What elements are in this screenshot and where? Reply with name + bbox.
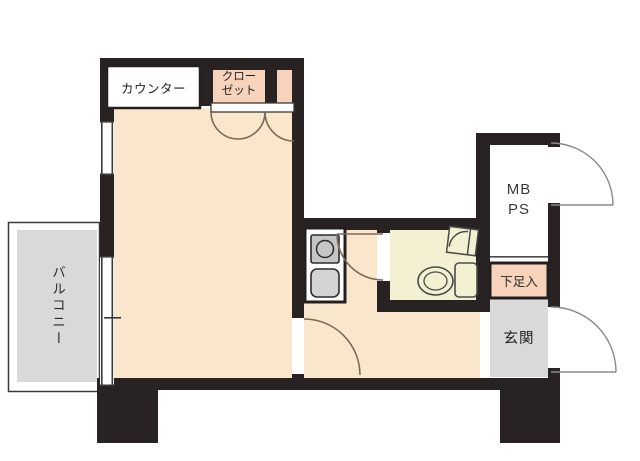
closet-label-line1: クロー: [222, 71, 257, 85]
closet-door-track: [211, 103, 294, 112]
balcony-label: バルコニー: [17, 230, 97, 382]
closet-label: クロー ゼット: [213, 66, 265, 103]
window: [100, 121, 114, 175]
floor-plan: カウンター クロー ゼット バルコニー MB PS 下足入 玄関: [0, 0, 640, 461]
room-door-opening: [292, 318, 304, 374]
washbasin: [447, 226, 479, 255]
sink: [311, 269, 339, 297]
kitchen-unit: [305, 228, 345, 302]
meter-box-divider: [490, 256, 548, 258]
meter-box-label-line1: MB: [507, 180, 532, 200]
front-door-swing: [551, 307, 616, 372]
stove: [311, 235, 339, 263]
counter-label: カウンター: [107, 66, 200, 108]
main-room-floor: [114, 108, 292, 378]
bathroom-door-opening: [377, 233, 390, 281]
closet-label-line2: ゼット: [222, 85, 257, 99]
meter-box-label: MB PS: [490, 145, 548, 255]
shoe-cabinet-label: 下足入: [490, 263, 548, 298]
meter-box-label-line2: PS: [508, 200, 530, 220]
bathroom: [390, 226, 478, 300]
meter-box-door-swing: [551, 143, 613, 205]
entrance-label: 玄関: [490, 298, 548, 377]
closet-side-floor: [277, 70, 292, 103]
